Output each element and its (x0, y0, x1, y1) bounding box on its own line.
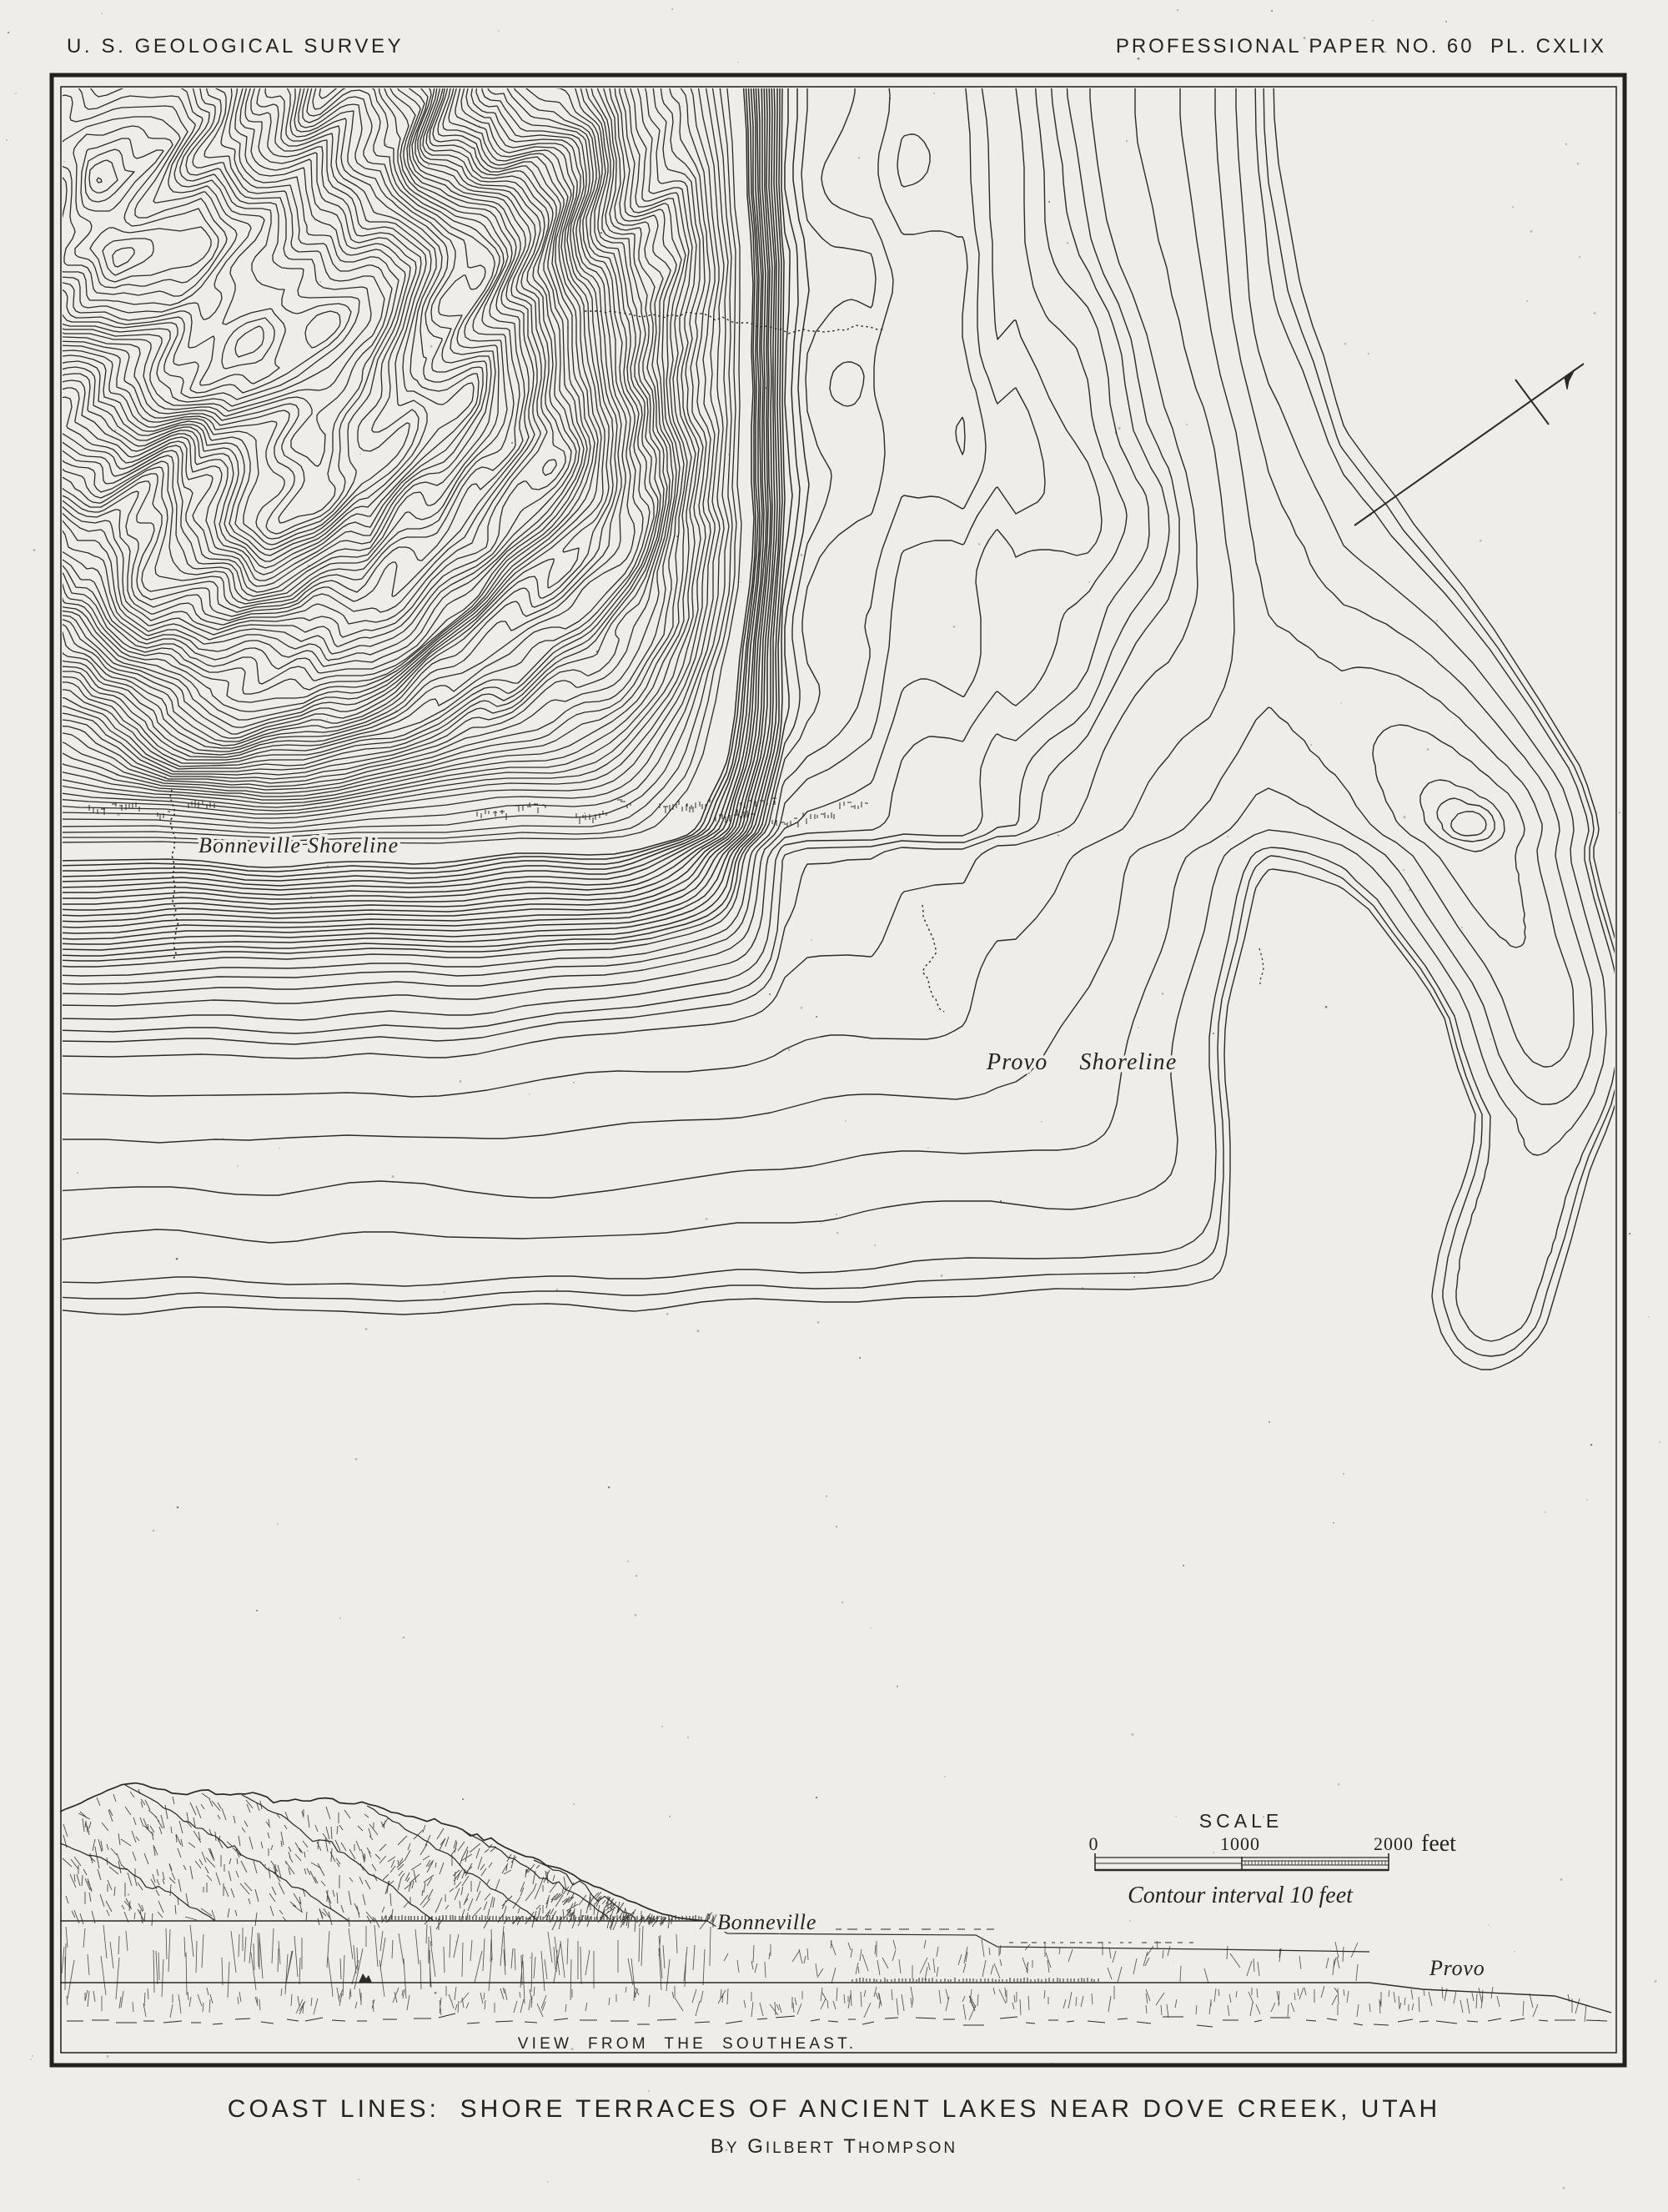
svg-text:Contour interval 10 feet: Contour interval 10 feet (1128, 1883, 1354, 1908)
svg-text:SCALE: SCALE (1199, 1810, 1283, 1832)
svg-text:1000: 1000 (1220, 1833, 1260, 1854)
svg-text:PROFESSIONAL PAPER NO. 60 PL.: PROFESSIONAL PAPER NO. 60 PL. CXLIX (1116, 35, 1606, 58)
svg-text:Bonneville Shoreline: Bonneville Shoreline (198, 833, 399, 857)
svg-text:BY GILBERT THOMPSON: BY GILBERT THOMPSON (711, 2135, 957, 2158)
svg-text:feet: feet (1421, 1831, 1456, 1857)
svg-text:VIEW FROM THE SOUTHEAST.: VIEW FROM THE SOUTHEAST. (518, 2035, 857, 2053)
svg-text:U. S. GEOLOGICAL SURVEY: U. S. GEOLOGICAL SURVEY (67, 35, 404, 58)
svg-text:0: 0 (1089, 1833, 1098, 1854)
svg-text:2000: 2000 (1374, 1833, 1414, 1854)
svg-text:ProvoShoreline: ProvoShoreline (986, 1049, 1177, 1075)
svg-text:Bonneville: Bonneville (717, 1910, 816, 1934)
svg-text:Provo: Provo (1429, 1956, 1485, 1980)
svg-text:COAST LINES: SHORE TERRACES O: COAST LINES: SHORE TERRACES OF ANCIENT L… (228, 2095, 1440, 2123)
